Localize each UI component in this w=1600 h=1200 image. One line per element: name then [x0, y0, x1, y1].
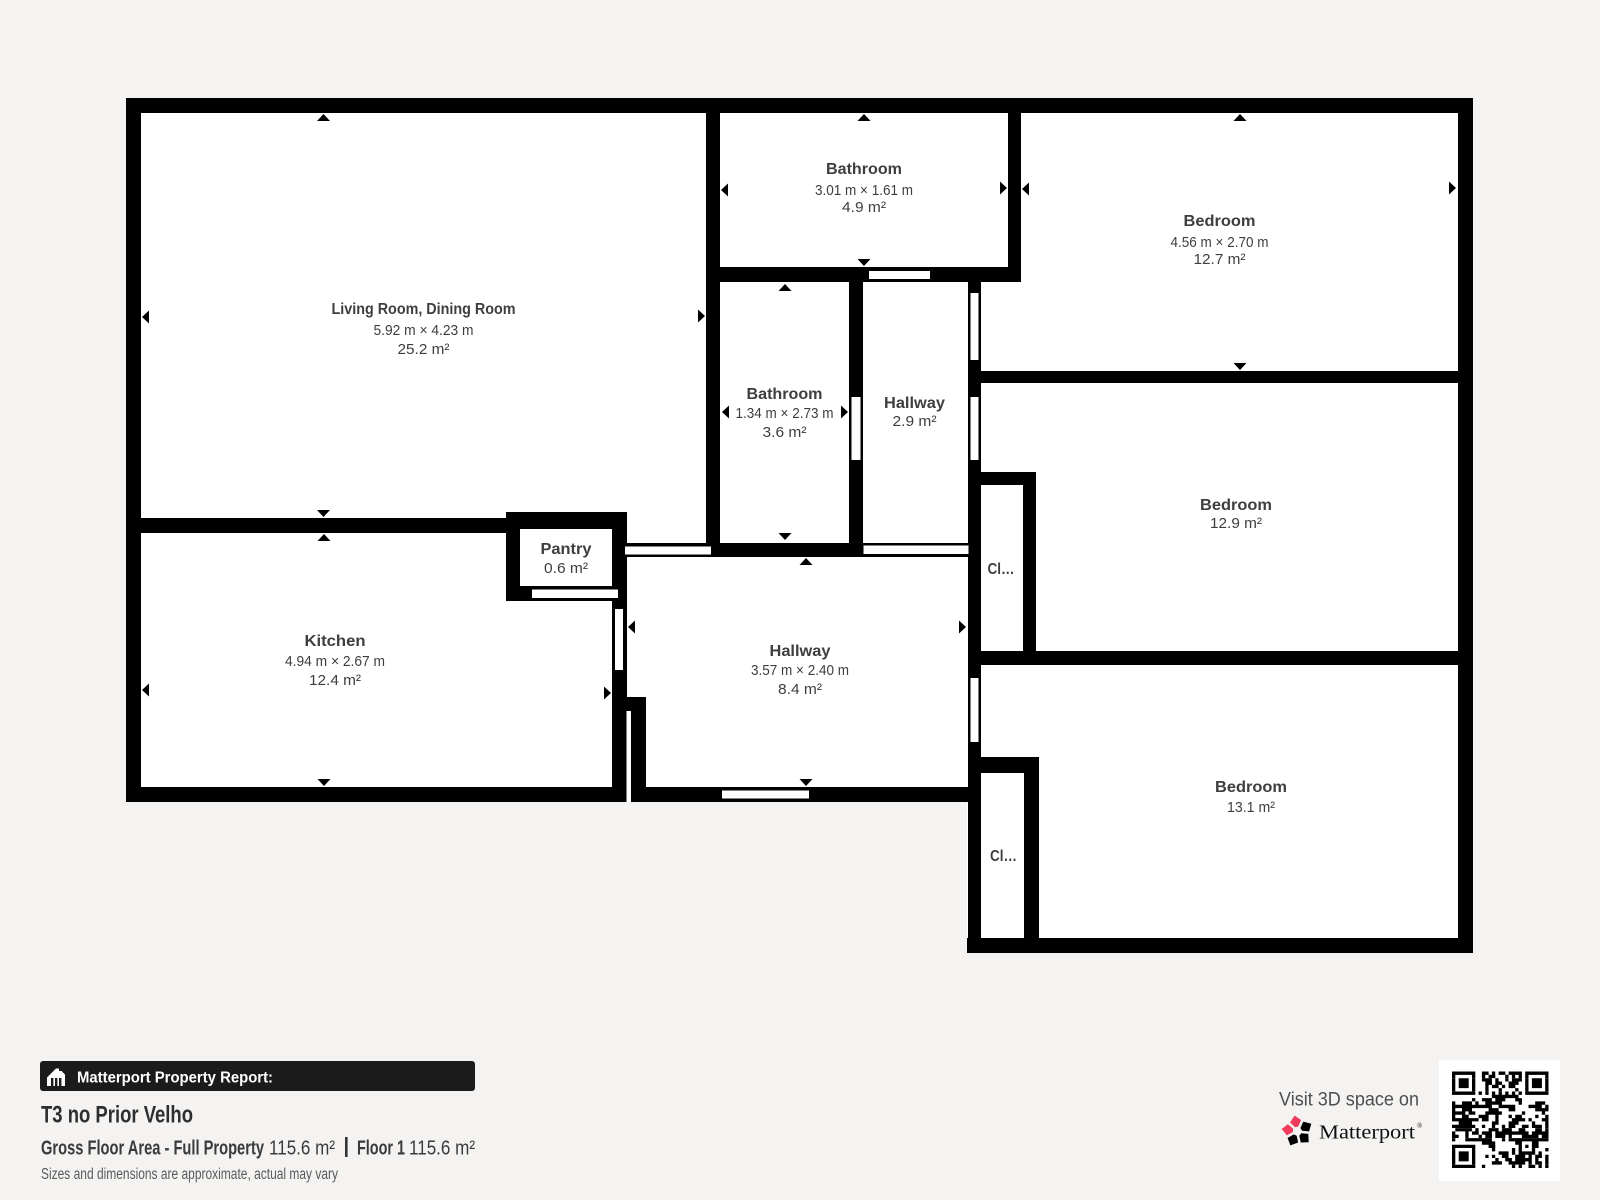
svg-text:13.1 m²: 13.1 m² [1227, 799, 1275, 816]
svg-text:Living Room, Dining Room: Living Room, Dining Room [332, 301, 516, 318]
svg-text:Floor 1: Floor 1 [357, 1138, 405, 1160]
svg-text:4.9 m²: 4.9 m² [842, 199, 886, 216]
svg-text:115.6 m²: 115.6 m² [269, 1138, 335, 1160]
svg-text:4.94 m × 2.67 m: 4.94 m × 2.67 m [285, 653, 385, 670]
svg-text:Hallway: Hallway [884, 395, 945, 412]
svg-text:3.57 m × 2.40 m: 3.57 m × 2.40 m [751, 662, 849, 679]
svg-text:Sizes and dimensions are appro: Sizes and dimensions are approximate, ac… [41, 1166, 338, 1183]
svg-text:12.9 m²: 12.9 m² [1210, 515, 1262, 532]
svg-text:12.4 m²: 12.4 m² [309, 672, 361, 689]
svg-text:®: ® [1417, 1122, 1423, 1130]
svg-text:Bathroom: Bathroom [826, 161, 902, 178]
svg-text:T3 no Prior Velho: T3 no Prior Velho [41, 1102, 193, 1129]
svg-text:Kitchen: Kitchen [305, 633, 366, 650]
svg-text:115.6 m²: 115.6 m² [409, 1138, 475, 1160]
svg-text:25.2 m²: 25.2 m² [398, 341, 450, 358]
svg-text:5.92 m × 4.23 m: 5.92 m × 4.23 m [374, 322, 474, 339]
svg-text:Cl…: Cl… [990, 848, 1017, 865]
svg-text:3.6 m²: 3.6 m² [763, 424, 807, 441]
svg-text:Pantry: Pantry [541, 541, 592, 558]
svg-text:Hallway: Hallway [770, 643, 831, 660]
svg-text:Cl…: Cl… [988, 561, 1015, 578]
svg-text:Bedroom: Bedroom [1200, 497, 1272, 514]
svg-text:Matterport Property Report:: Matterport Property Report: [77, 1070, 273, 1087]
svg-text:Bedroom: Bedroom [1184, 213, 1256, 230]
svg-text:Bathroom: Bathroom [747, 386, 823, 403]
svg-text:3.01 m × 1.61 m: 3.01 m × 1.61 m [815, 182, 913, 199]
svg-text:0.6 m²: 0.6 m² [544, 560, 588, 577]
svg-text:12.7 m²: 12.7 m² [1194, 251, 1246, 268]
svg-text:1.34 m × 2.73 m: 1.34 m × 2.73 m [736, 405, 834, 422]
svg-text:2.9 m²: 2.9 m² [893, 413, 937, 430]
svg-text:Bedroom: Bedroom [1215, 779, 1287, 796]
svg-text:8.4 m²: 8.4 m² [778, 681, 822, 698]
svg-text:Visit 3D space on: Visit 3D space on [1279, 1090, 1419, 1111]
svg-text:4.56 m × 2.70 m: 4.56 m × 2.70 m [1171, 234, 1269, 251]
svg-text:Matterport: Matterport [1319, 1122, 1415, 1144]
svg-text:Gross Floor Area - Full Proper: Gross Floor Area - Full Property [41, 1138, 265, 1160]
